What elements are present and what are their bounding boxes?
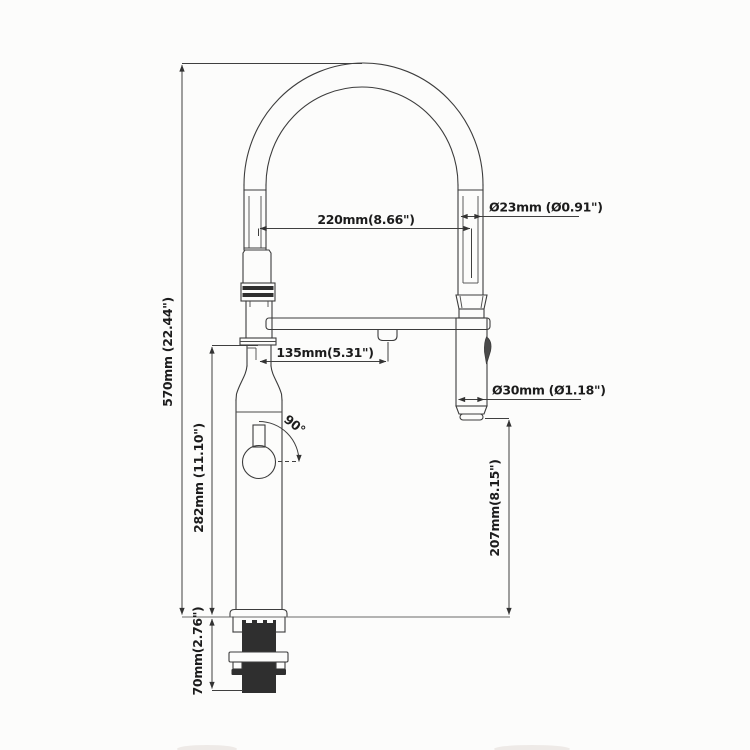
gooseneck-inner-arc	[266, 87, 458, 185]
base-flange	[230, 610, 287, 618]
handle-stem	[253, 425, 265, 447]
faucet-outline	[182, 63, 510, 693]
dim-spray-head-clearance: 207mm(8.15")	[485, 419, 509, 615]
spring-ring-flange	[241, 283, 275, 301]
scan-smudge-left	[177, 745, 237, 750]
dim-label-overall-height: 570mm (22.44")	[160, 297, 175, 407]
handle-knob	[243, 446, 276, 479]
dim-label-under-counter-depth: 70mm(2.76")	[190, 607, 205, 696]
dim-spout-reach: 220mm(8.66")	[259, 212, 472, 278]
dim-spout-tube-diameter: Ø23mm (Ø0.91")	[461, 200, 603, 217]
spray-nozzle-tip	[460, 414, 483, 420]
dimension-annotations: 570mm (22.44") 282mm (11.10") 70mm(2.76"…	[160, 64, 606, 696]
mounting-washer	[229, 652, 288, 662]
dim-body-height: 282mm (11.10")	[191, 346, 258, 615]
dim-label-dock-offset: 135mm(5.31")	[276, 345, 373, 360]
dim-label-spray-head-clearance: 207mm(8.15")	[487, 459, 502, 556]
dim-under-counter-depth: 70mm(2.76")	[190, 607, 243, 696]
dim-label-spout-reach: 220mm(8.66")	[317, 212, 414, 227]
spray-trigger-lever	[484, 337, 491, 364]
dim-label-body-height: 282mm (11.10")	[191, 423, 206, 533]
hose-coupler	[243, 250, 271, 283]
dim-dock-offset: 135mm(5.31")	[260, 342, 388, 362]
gooseneck-outer-arc	[244, 63, 483, 185]
dim-label-spray-head-diameter: Ø30mm (Ø1.18")	[492, 383, 606, 398]
faucet-dimension-drawing: 570mm (22.44") 282mm (11.10") 70mm(2.76"…	[0, 0, 750, 750]
spray-head-body	[456, 318, 487, 406]
mounting-hardware	[229, 617, 288, 693]
dim-handle-swing-angle: 90°	[259, 412, 308, 462]
dim-label-spout-tube-diameter: Ø23mm (Ø0.91")	[489, 200, 603, 215]
dim-spray-head-diameter: Ø30mm (Ø1.18")	[459, 383, 606, 400]
scan-smudge-right	[494, 745, 570, 750]
dock-bump	[378, 330, 397, 341]
technical-drawing-page: 570mm (22.44") 282mm (11.10") 70mm(2.76"…	[0, 0, 750, 750]
dim-label-handle-swing-angle: 90°	[281, 412, 308, 438]
